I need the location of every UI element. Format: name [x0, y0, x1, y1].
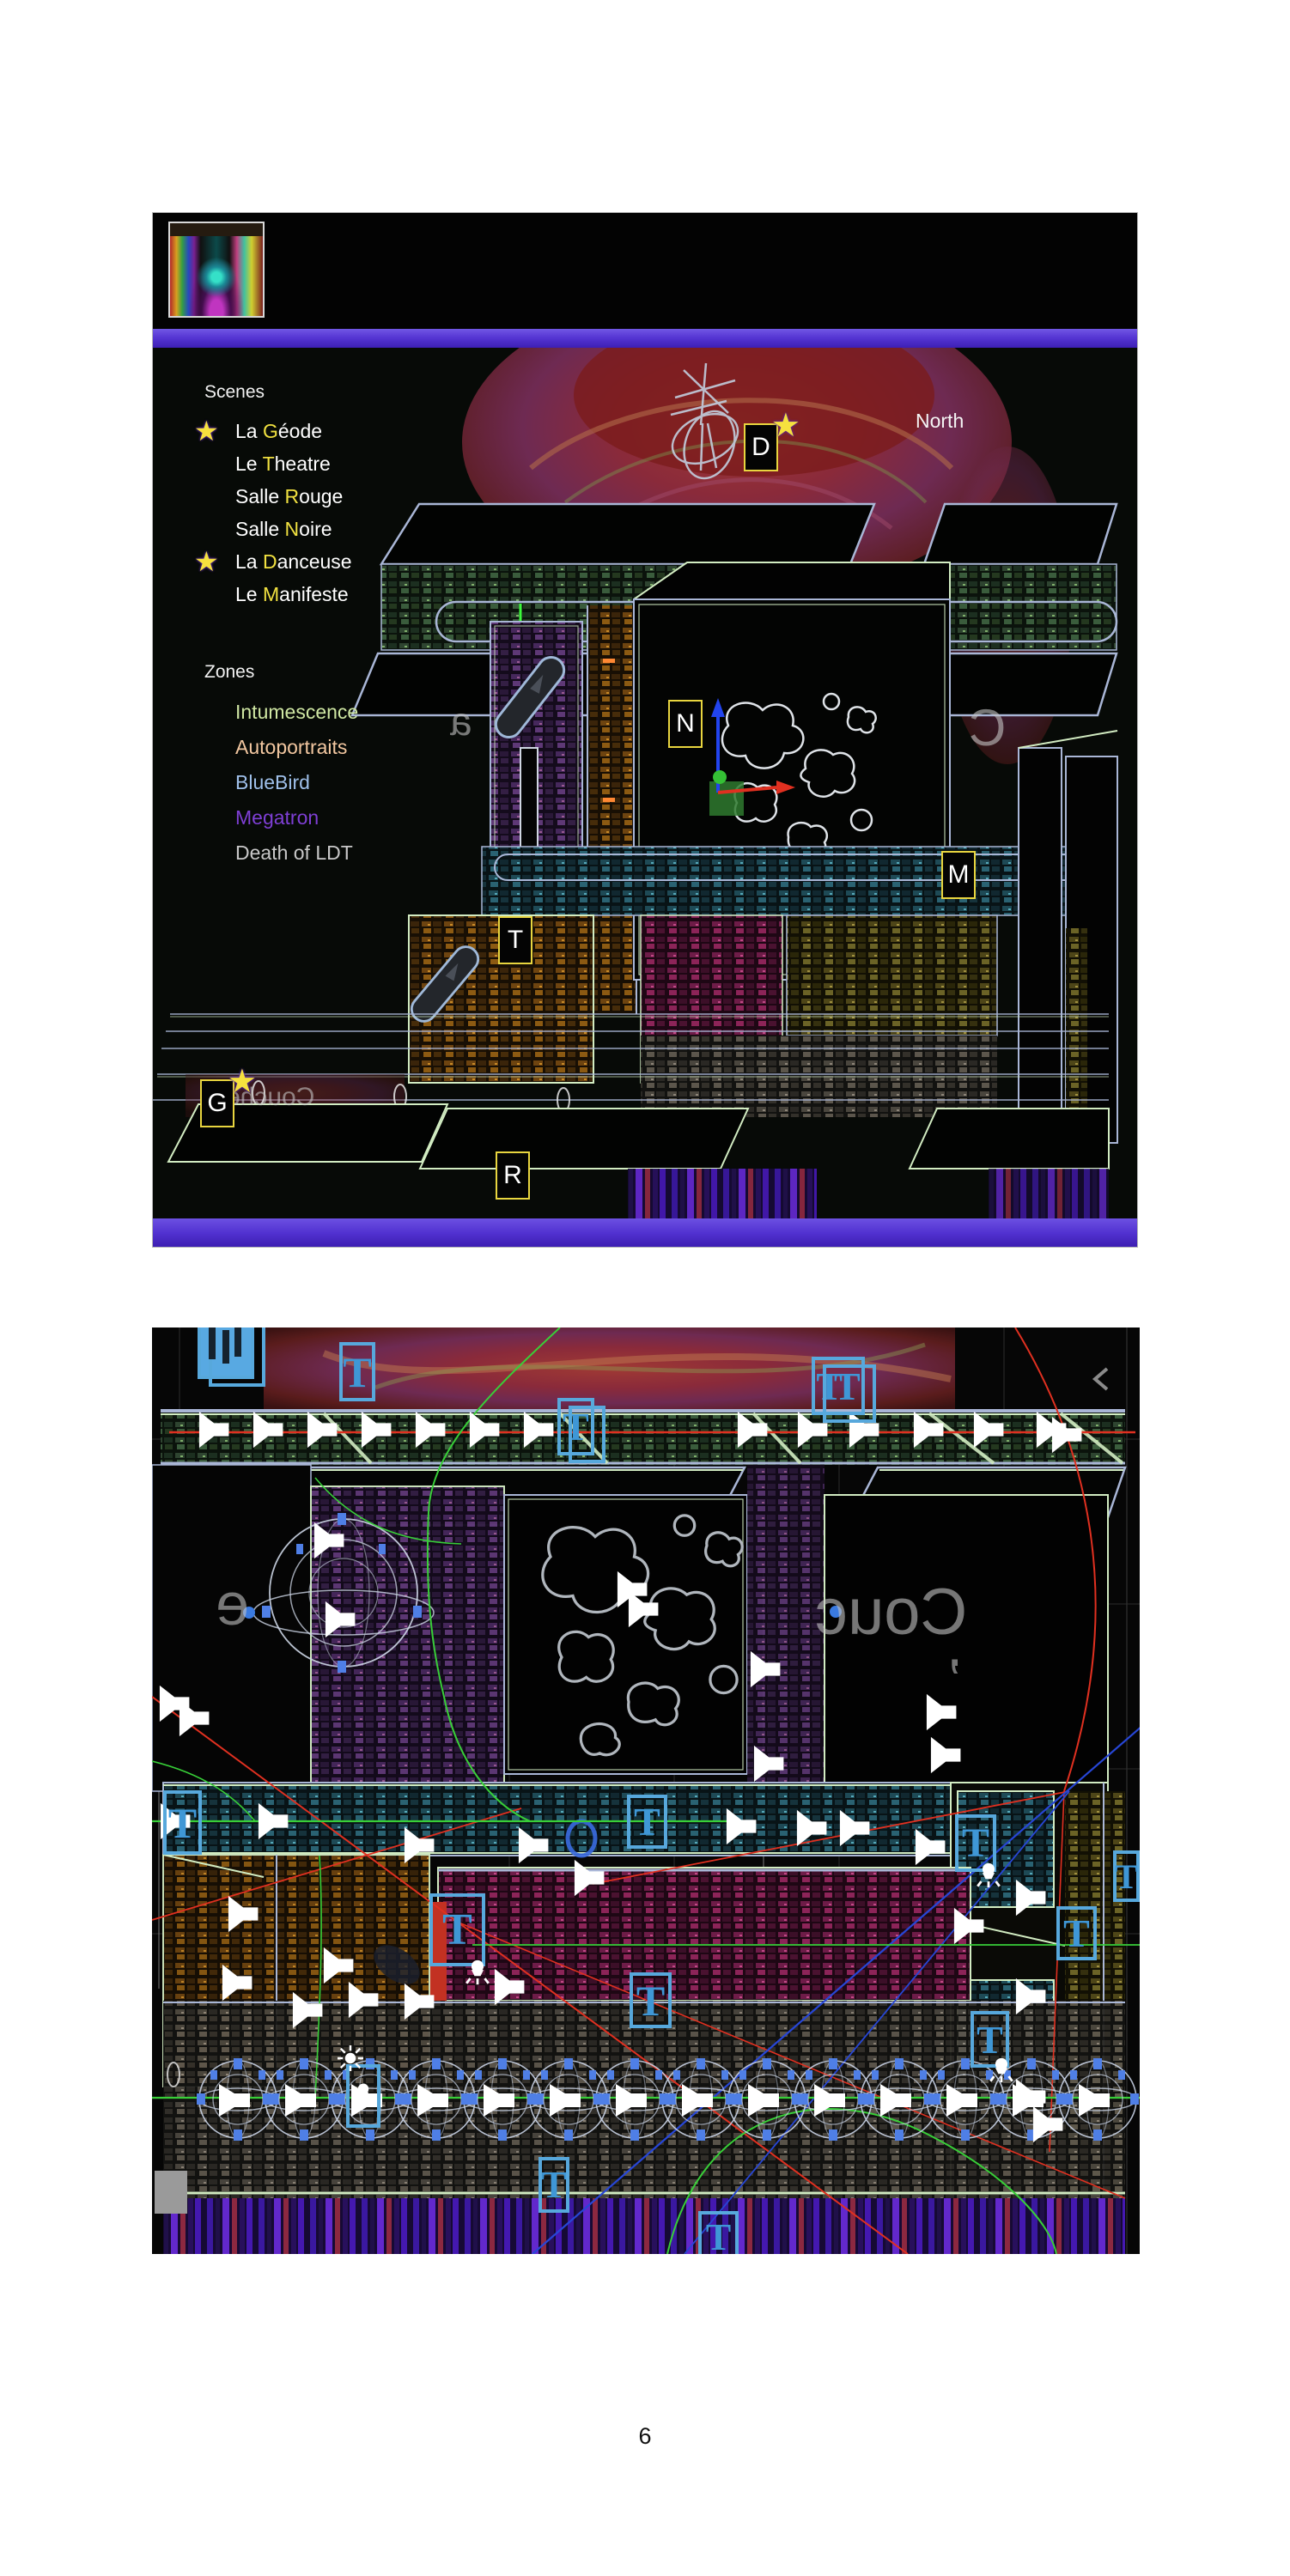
trigger-badge: [346, 2064, 380, 2128]
scene-name-suffix: ouge: [299, 485, 343, 507]
badge-letter: TT: [825, 1364, 851, 1409]
marker-letter: R: [503, 1161, 522, 1190]
map-marker: T: [498, 916, 532, 964]
scene-name-suffix: éode: [278, 420, 322, 442]
scene-text: C: [969, 698, 1006, 757]
speaker-icon: [723, 1807, 766, 1846]
speaker-icon: [176, 1698, 219, 1738]
trigger-badge: T: [698, 2211, 739, 2254]
badge-letter: T: [636, 1976, 665, 2026]
zone-list-item: BlueBird: [204, 765, 358, 800]
figure-zoomed-screenshot: Couc e ,: [152, 1327, 1140, 2254]
speaker-icon: [358, 1410, 401, 1449]
scene-name-suffix: anifeste: [279, 583, 349, 605]
speaker-icon: [928, 1735, 971, 1775]
scene-text-glyphs: ,: [946, 1612, 963, 1679]
scene-text-glyphs: Couc: [815, 1576, 967, 1649]
trigger-badge: T: [539, 2157, 569, 2213]
lamp-icon: [350, 2081, 376, 2111]
zones-title: Zones: [204, 662, 358, 683]
map-marker: R: [496, 1151, 530, 1200]
figure-overview-screenshot: Scenes ★ La Géode Le Theatre Salle Rouge…: [152, 212, 1138, 1248]
speaker-icon: [311, 1521, 354, 1560]
zone-name: Death of LDT: [235, 841, 353, 864]
trigger-badge: TT: [812, 1357, 865, 1415]
speaker-icon: [219, 1963, 262, 2002]
scene-key-letter: T: [263, 453, 275, 475]
map-marker: G ★: [200, 1079, 234, 1127]
zone-list-item: Megatron: [204, 800, 358, 835]
speaker-icon: [466, 1410, 509, 1449]
speaker-icon: [250, 1410, 293, 1449]
scene-text: ,: [946, 1611, 963, 1680]
lamp-icon: [987, 2049, 1016, 2078]
speaker-icon: [625, 1589, 668, 1629]
speaker-icon: [912, 1827, 955, 1867]
marker-letter: D: [751, 433, 770, 462]
trigger-badge: T: [163, 1790, 202, 1855]
scene-text-glyphs: e: [216, 1571, 249, 1637]
zone-name: BlueBird: [235, 771, 310, 793]
center-contour-room: [504, 1495, 747, 1774]
zone-list-item: Intumescence: [204, 695, 358, 730]
badge-letter: T: [168, 1798, 197, 1848]
light-burst-icon: [338, 2045, 363, 2071]
gray-panel-fragment: [155, 2171, 187, 2214]
scene-text-glyphs: a: [450, 699, 472, 744]
legend: Scenes ★ La Géode Le Theatre Salle Rouge…: [204, 382, 358, 871]
trigger-badge: T: [1056, 1906, 1097, 1960]
badge-letter: T: [563, 1404, 589, 1449]
scene-list-item: Salle Rouge: [204, 480, 358, 513]
star-icon: ★: [228, 1062, 257, 1101]
speaker-icon: [846, 1410, 889, 1449]
scene-text: Couc: [815, 1575, 967, 1649]
marker-letter: T: [508, 926, 523, 955]
scene-list-item: Le Theatre: [204, 447, 358, 480]
scene-name-prefix: Salle: [235, 518, 285, 540]
room-olive: [787, 915, 997, 1036]
zone-list-item: Death of LDT: [204, 835, 358, 871]
trigger-badge: T: [630, 1972, 672, 2028]
map-marker: M: [941, 851, 976, 899]
scene-text: e: [216, 1570, 249, 1638]
lamp-icon: [463, 1947, 492, 1977]
speaker-icon: [1030, 2105, 1073, 2144]
scene-text: a: [450, 698, 472, 744]
marker-letter: G: [207, 1089, 227, 1118]
badge-letter: T: [343, 1347, 371, 1397]
speaker-icon: [322, 1600, 365, 1639]
speaker-icon: [951, 1906, 994, 1946]
audio-clip-icon: [209, 1327, 216, 1359]
scenes-title: Scenes: [204, 382, 358, 403]
scene-name-prefix: Salle: [235, 485, 285, 507]
badge-letter: T: [634, 1799, 660, 1844]
speaker-icon: [971, 1410, 1013, 1449]
corridor-orange: [587, 605, 636, 1014]
scene-name-suffix: anceuse: [277, 550, 352, 573]
scene-key-letter: G: [263, 420, 278, 442]
scene-name-prefix: Le: [235, 583, 263, 605]
bottom-streak-strip: [163, 2198, 1125, 2254]
scene-key-letter: R: [285, 485, 300, 507]
speaker-icon: [289, 1990, 332, 2030]
marker-letter: N: [676, 709, 695, 738]
scene-name-prefix: La: [235, 420, 263, 442]
scenes-list: ★ La Géode Le Theatre Salle Rouge Salle …: [204, 415, 358, 611]
scene-name-suffix: heatre: [275, 453, 331, 475]
right-columns: [1019, 731, 1117, 1143]
speaker-icon: [196, 1410, 239, 1449]
scene-name-prefix: La: [235, 550, 263, 573]
speaker-icon: [794, 1410, 837, 1449]
scene-key-letter: N: [285, 518, 300, 540]
speaker-icon: [515, 1826, 558, 1865]
scene-key-letter: M: [263, 583, 279, 605]
badge-letter: T: [706, 2215, 731, 2255]
badge-letter: T: [1115, 1856, 1138, 1897]
speaker-icon: [304, 1410, 347, 1449]
trigger-badge: T: [1113, 1850, 1140, 1902]
star-icon: ★: [194, 545, 219, 578]
trigger-badge: T: [429, 1893, 485, 1966]
speaker-icon: [225, 1894, 268, 1934]
speaker-icon: [1049, 1415, 1092, 1455]
page-number: 6: [0, 2423, 1290, 2450]
speaker-icon: [794, 1808, 837, 1848]
badge-letter: T: [1063, 1911, 1090, 1956]
map-marker: N: [668, 700, 703, 748]
band-cyan: [482, 847, 1109, 915]
badge-letter: T: [541, 2163, 566, 2207]
speaker-icon: [571, 1858, 614, 1898]
zone-name: Intumescence: [235, 701, 358, 723]
purple-accent-bar-bottom: [153, 1218, 1137, 1248]
speaker-icon: [412, 1410, 455, 1449]
speaker-icon: [255, 1801, 298, 1841]
speaker-icon: [734, 1410, 777, 1449]
speaker-icon: [1013, 1977, 1056, 2016]
scene-list-item: ★ La Danceuse: [204, 545, 358, 578]
map-marker: D ★: [744, 423, 778, 471]
trigger-badge: T: [627, 1795, 667, 1849]
zone-name: Autoportraits: [235, 736, 347, 758]
scene-list-item: Le Manifeste: [204, 578, 358, 611]
scene-name-suffix: oire: [299, 518, 332, 540]
speaker-icon: [923, 1692, 966, 1732]
scene-list-item: ★ La Géode: [204, 415, 358, 447]
speaker-icon: [1013, 1878, 1056, 1917]
speaker-icon: [345, 1980, 388, 2020]
zones-list: Intumescence Autoportraits BlueBird Mega…: [204, 695, 358, 871]
scene-text-glyphs: C: [969, 699, 1006, 756]
star-icon: ★: [194, 415, 219, 447]
trigger-badge: [198, 1327, 254, 1379]
scene-key-letter: D: [263, 550, 277, 573]
app-header-bar: [153, 213, 1137, 329]
star-icon: ★: [771, 406, 800, 445]
speaker-icon: [491, 1967, 534, 2007]
marker-letter: M: [948, 860, 970, 890]
trigger-badge: T: [955, 1814, 996, 1872]
trigger-badge: T: [971, 2011, 1009, 2068]
zone-list-item: Autoportraits: [204, 730, 358, 765]
corridor-thumbnail-image: [168, 222, 265, 318]
speaker-icon: [747, 1649, 790, 1689]
scene-name-prefix: Le: [235, 453, 263, 475]
north-label: North: [916, 410, 964, 433]
zone-name: Megatron: [235, 806, 319, 829]
overview-map: Scenes ★ La Géode Le Theatre Salle Rouge…: [153, 348, 1138, 1218]
lamp-icon: [974, 1853, 1003, 1882]
speaker-icon: [401, 1826, 444, 1865]
scene-list-item: Salle Noire: [204, 513, 358, 545]
trigger-badge: T: [557, 1398, 594, 1455]
speaker-icon: [910, 1410, 953, 1449]
speaker-icon: [837, 1808, 879, 1848]
speaker-icon: [751, 1744, 794, 1783]
trigger-badge: T: [339, 1342, 375, 1401]
speaker-icon: [401, 1982, 444, 2021]
purple-accent-bar-top: [153, 329, 1137, 348]
